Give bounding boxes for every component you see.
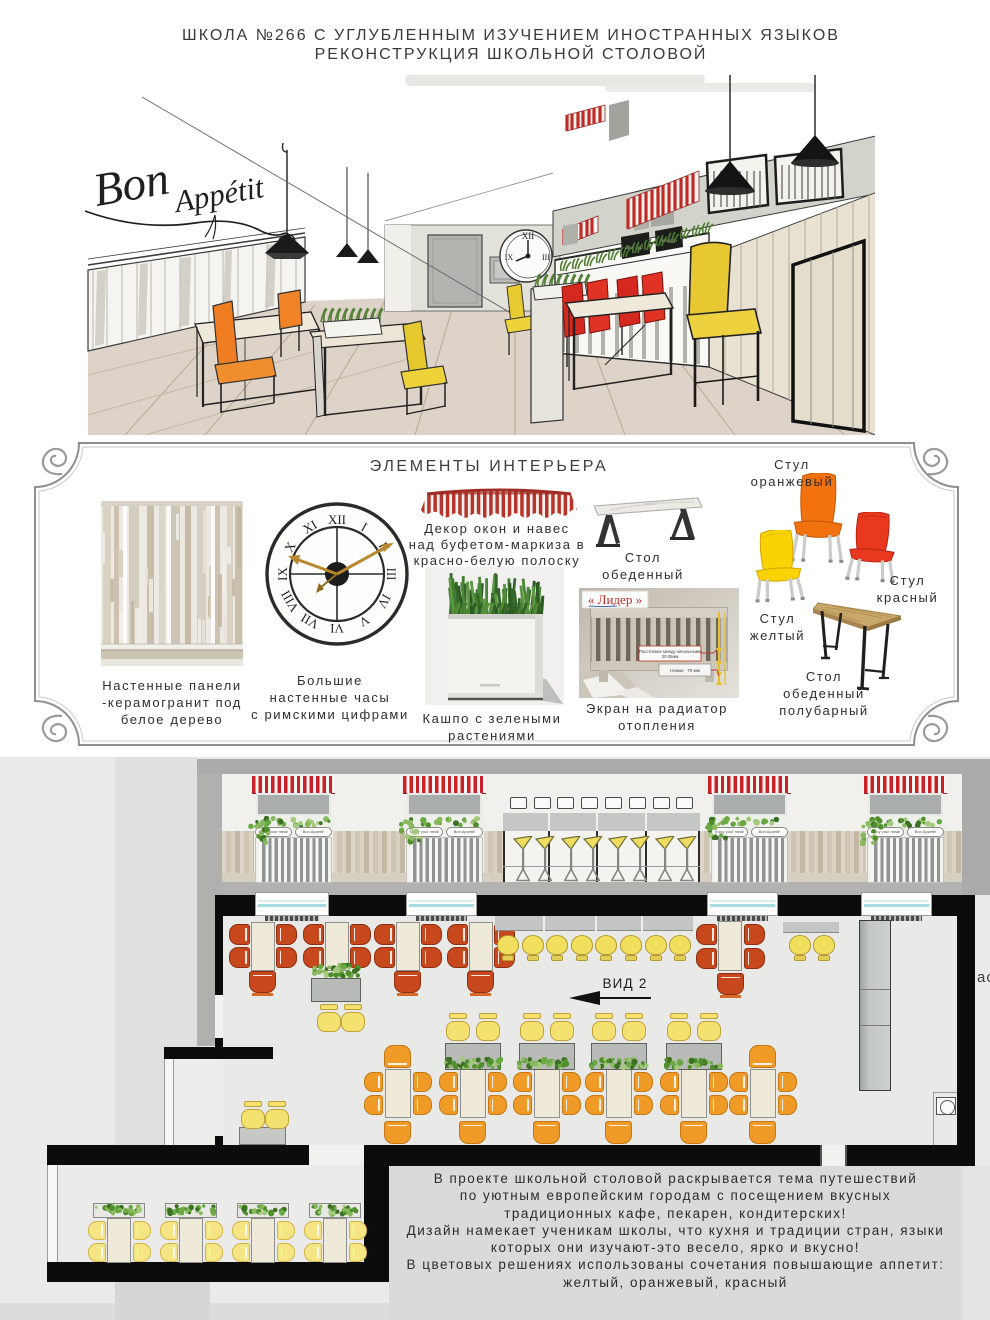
svg-text:XII: XII — [328, 512, 346, 527]
svg-text:Ножки 70 мм: Ножки 70 мм — [670, 668, 699, 673]
svg-text:XII: XII — [522, 231, 535, 241]
svg-text:30-35мм: 30-35мм — [662, 654, 679, 659]
svg-text:« Лидер »: « Лидер » — [588, 592, 642, 607]
svg-text:IX: IX — [275, 567, 290, 581]
svg-text:IX: IX — [505, 253, 514, 262]
svg-text:III: III — [384, 568, 399, 581]
svg-text:III: III — [542, 253, 550, 262]
svg-text:Appétit: Appétit — [170, 169, 268, 220]
svg-text:Bon: Bon — [89, 153, 173, 217]
svg-text:VI: VI — [330, 621, 344, 636]
